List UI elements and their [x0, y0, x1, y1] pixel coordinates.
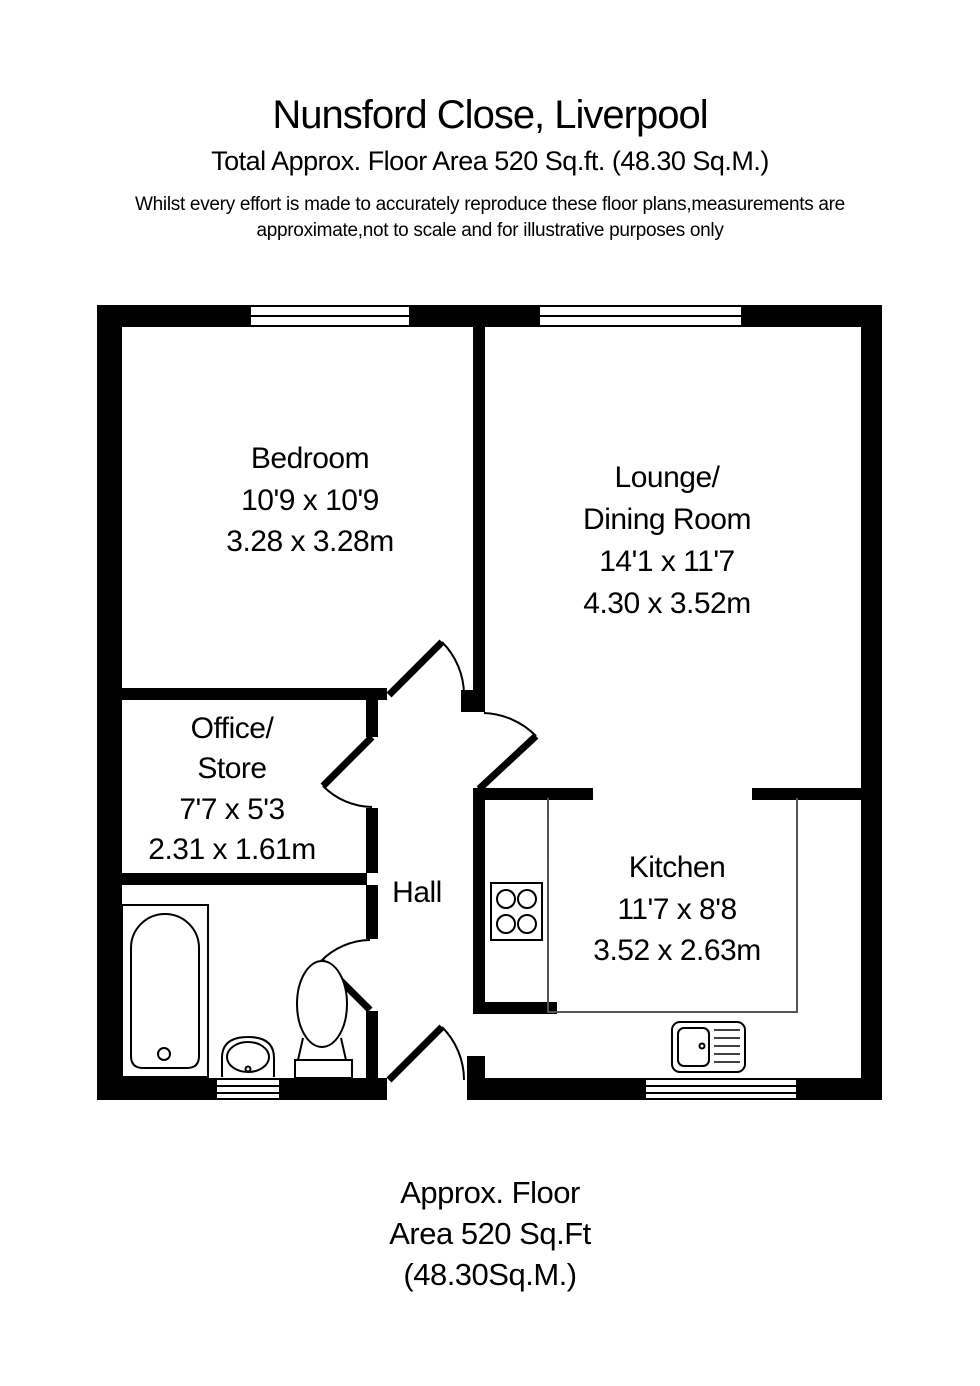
wall-bedroom-lounge-divider: [473, 327, 485, 712]
wall-bathroom-right-lower: [366, 1011, 378, 1078]
footer-line-2: Area 520 Sq.Ft: [0, 1213, 980, 1254]
wall-bathroom-top: [122, 873, 367, 885]
wall-front-door-stub: [467, 1056, 485, 1078]
wall-bottom-2: [280, 1078, 387, 1100]
wall-bottom-1: [97, 1078, 216, 1100]
kitchen-label: Kitchen: [629, 851, 726, 884]
footer-area-text: Approx. Floor Area 520 Sq.Ft (48.30Sq.M.…: [0, 1172, 980, 1295]
wall-bedroom-bottom: [122, 688, 387, 700]
wall-bathroom-right-upper: [366, 885, 378, 939]
lounge-dims-m: 4.30 x 3.52m: [583, 587, 750, 620]
bedroom-dims-ft: 10'9 x 10'9: [241, 484, 379, 517]
footer-line-1: Approx. Floor: [0, 1172, 980, 1213]
bedroom-label: Bedroom: [251, 442, 369, 475]
lounge-label-line1: Lounge/: [615, 461, 721, 494]
lounge-dims-ft: 14'1 x 11'7: [599, 545, 735, 578]
wall-left: [97, 305, 122, 1100]
wall-kitchen-top-left-stub: [473, 788, 593, 800]
room-labels: Bedroom 10'9 x 10'9 3.28 x 3.28m Lounge/…: [148, 442, 760, 967]
wall-top-middle: [410, 305, 539, 327]
lounge-label-line2: Dining Room: [583, 503, 751, 536]
bathroom-window: [216, 1079, 280, 1099]
kitchen-dims-m: 3.52 x 2.63m: [593, 934, 760, 967]
wall-office-right-upper: [366, 700, 378, 737]
front-door: [389, 1027, 464, 1080]
wall-office-right-lower: [366, 808, 378, 873]
wall-bottom-3: [467, 1078, 645, 1100]
hall-label: Hall: [392, 876, 442, 909]
wall-bedroom-door-tab: [461, 690, 473, 712]
office-door: [323, 737, 372, 807]
wall-bottom-4: [797, 1078, 882, 1100]
exterior-walls: [97, 305, 882, 1100]
hob: [491, 883, 542, 940]
office-label-line1: Office/: [191, 712, 275, 745]
bedroom-door: [389, 642, 464, 695]
kitchen-dims-ft: 11'7 x 8'8: [617, 893, 736, 926]
bath: [122, 905, 208, 1077]
bathroom-basin: [222, 1037, 274, 1077]
office-label-line2: Store: [197, 752, 266, 785]
kitchen-window: [645, 1079, 797, 1099]
bedroom-window: [250, 306, 410, 326]
doors: [321, 642, 536, 1080]
wall-right: [861, 305, 882, 1100]
lounge-door: [479, 713, 536, 789]
lounge-window: [539, 306, 742, 326]
wall-hall-kitchen-divider: [473, 788, 485, 1010]
office-dims-m: 2.31 x 1.61m: [148, 833, 315, 866]
office-dims-ft: 7'7 x 5'3: [179, 793, 284, 826]
kitchen-sink: [672, 1022, 745, 1072]
wall-hall-bottom-stub: [473, 1002, 557, 1014]
wall-kitchen-top-right-stub: [752, 788, 861, 800]
bedroom-dims-m: 3.28 x 3.28m: [226, 525, 393, 558]
footer-line-3: (48.30Sq.M.): [0, 1254, 980, 1295]
